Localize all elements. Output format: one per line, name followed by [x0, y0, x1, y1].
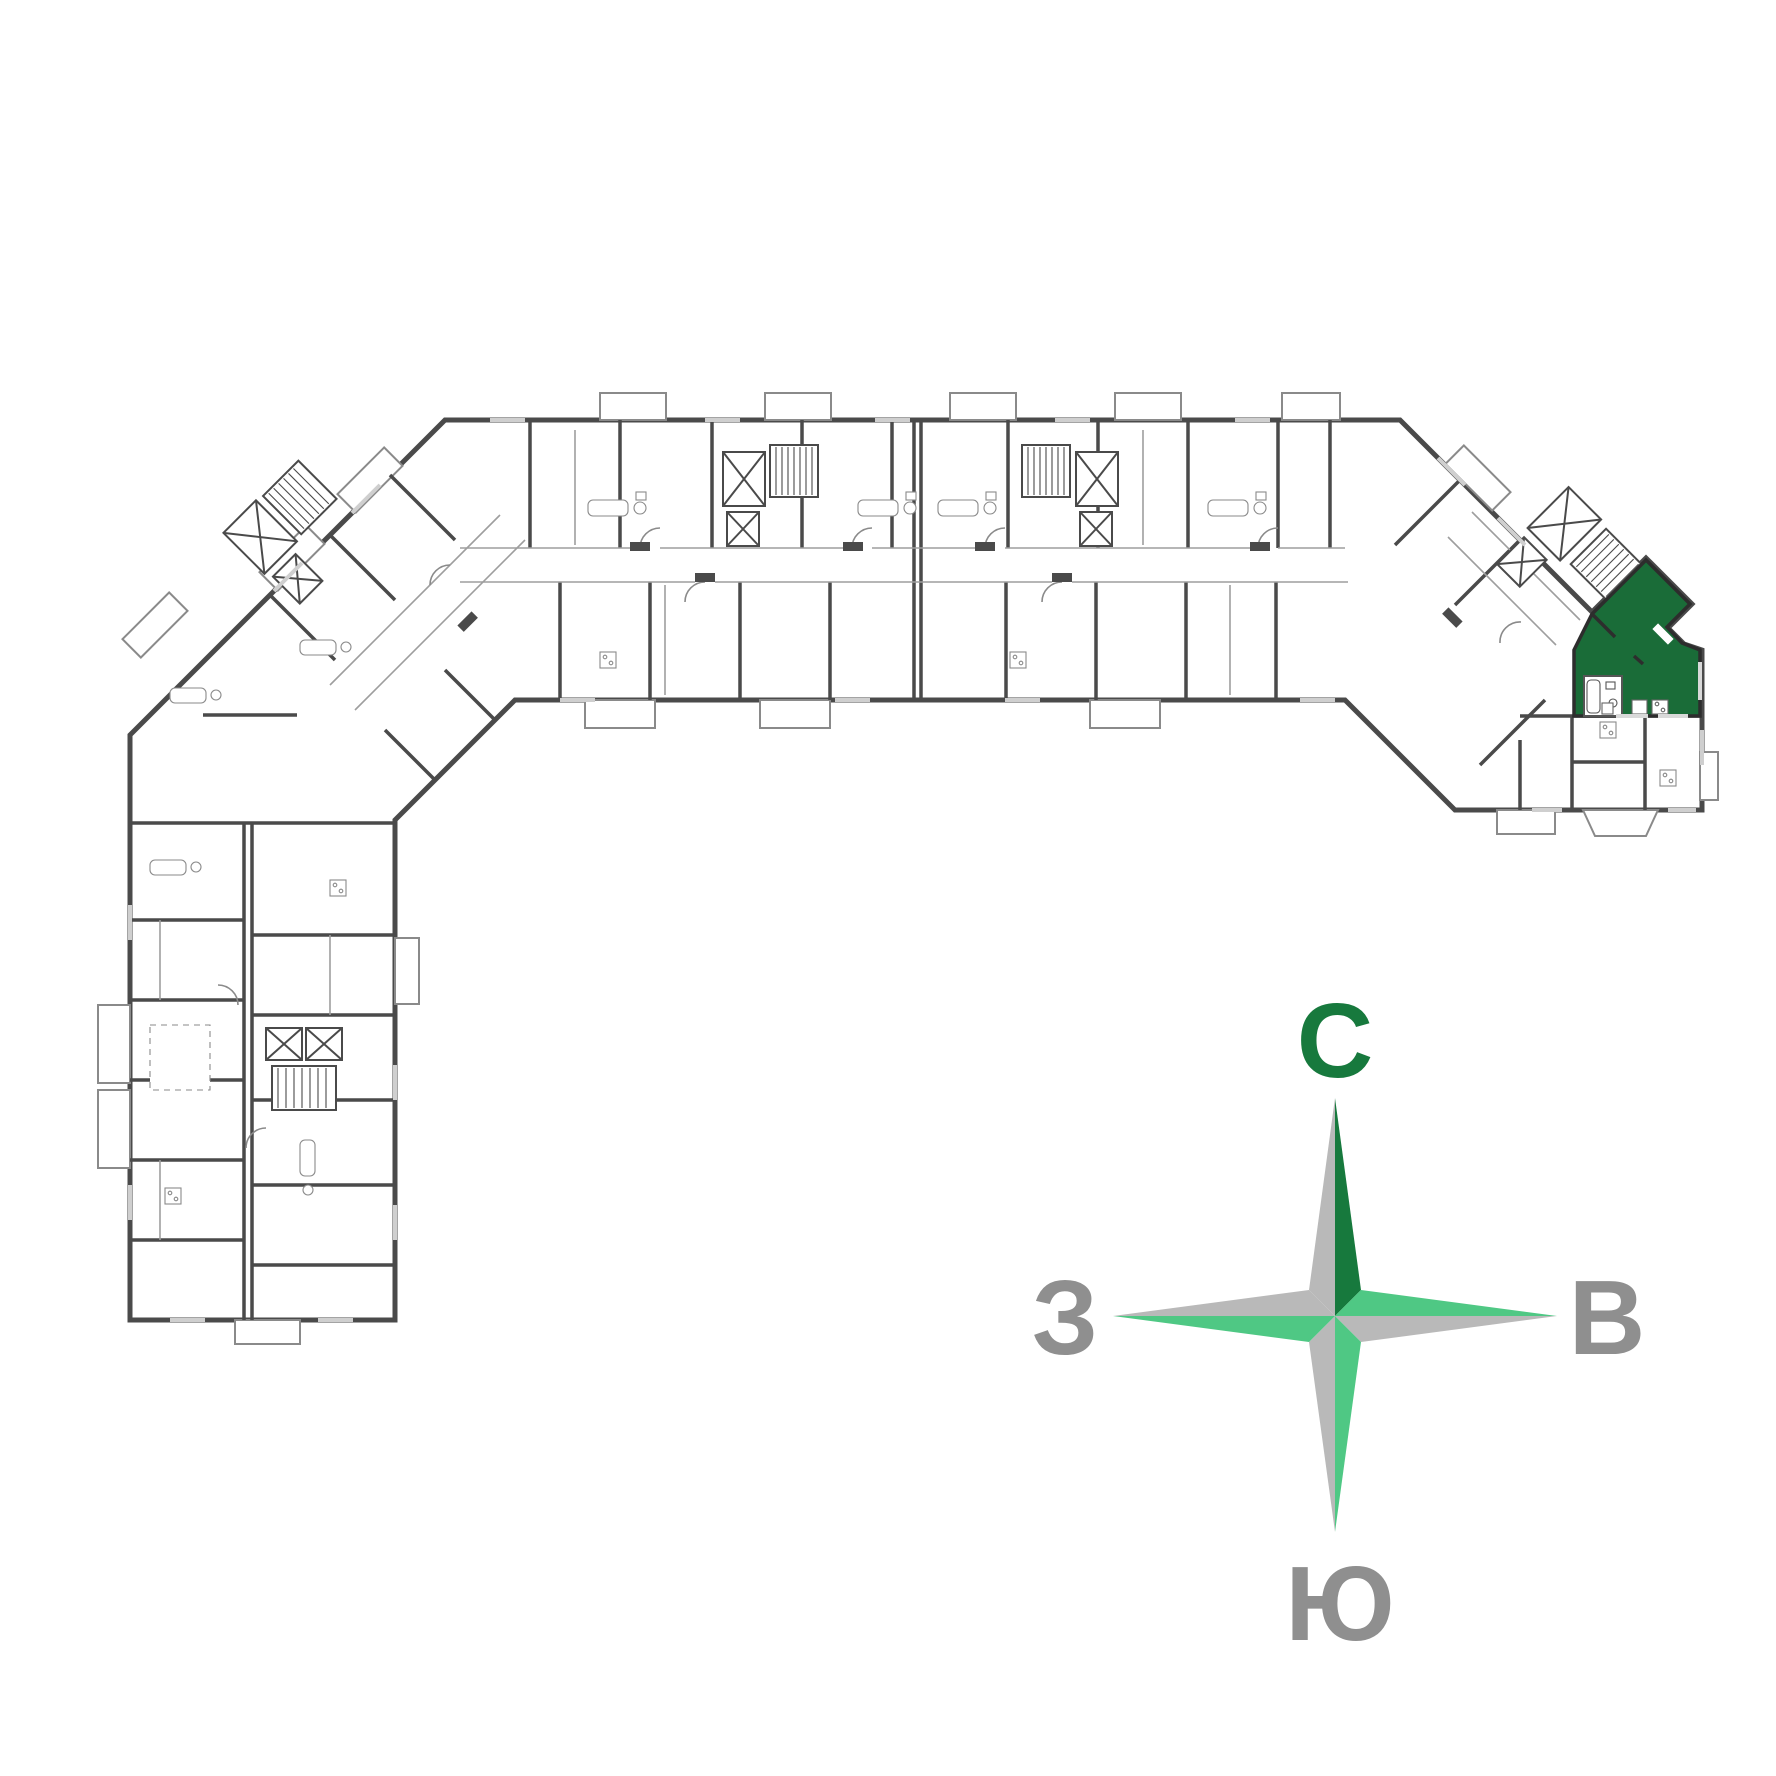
compass-north-left	[1309, 1098, 1335, 1316]
stairs-icon	[770, 445, 818, 497]
elevator-icon	[1076, 452, 1118, 546]
compass-east-bottom	[1335, 1316, 1557, 1342]
compass-north-right	[1335, 1098, 1361, 1316]
compass-south-left	[1309, 1316, 1335, 1532]
floor-plan-page: С З В Ю	[0, 0, 1776, 1776]
elevator-icon	[723, 452, 765, 546]
compass-west-top	[1113, 1290, 1335, 1316]
stairs-icon	[1022, 445, 1070, 497]
compass-rose: С З В Ю	[1032, 982, 1645, 1663]
compass-east-top	[1335, 1290, 1557, 1316]
compass-west-bottom	[1113, 1316, 1335, 1342]
compass-label-south: Ю	[1285, 1545, 1394, 1663]
compass-label-east: В	[1569, 1259, 1646, 1377]
compass-label-north: С	[1297, 982, 1374, 1100]
compass-label-west: З	[1032, 1259, 1098, 1377]
building-floor-plan	[98, 393, 1718, 1344]
compass-south-right	[1335, 1316, 1361, 1532]
